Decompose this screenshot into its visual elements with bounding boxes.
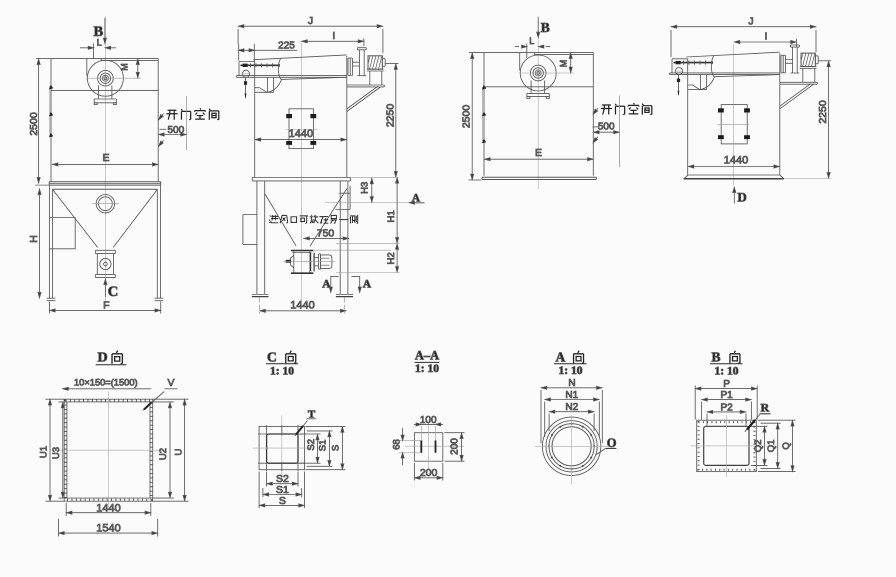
svg-text:N2: N2 xyxy=(565,402,578,413)
svg-text:D: D xyxy=(737,189,746,204)
svg-text:S2: S2 xyxy=(306,439,317,451)
svg-text:100: 100 xyxy=(420,415,437,426)
svg-text:P1: P1 xyxy=(720,390,733,401)
svg-text:A: A xyxy=(322,279,331,291)
svg-text:P: P xyxy=(723,379,730,390)
svg-text:10×150=(1500): 10×150=(1500) xyxy=(74,378,138,388)
svg-text:P2: P2 xyxy=(720,402,733,413)
svg-text:1: 10: 1: 10 xyxy=(270,365,294,377)
svg-text:M: M xyxy=(559,60,569,68)
svg-text:A: A xyxy=(556,349,566,364)
svg-text:H1: H1 xyxy=(386,210,397,222)
svg-text:1440: 1440 xyxy=(289,128,313,140)
svg-text:750: 750 xyxy=(317,227,335,239)
svg-text:A–A: A–A xyxy=(415,349,439,363)
svg-text:H3: H3 xyxy=(359,182,370,194)
svg-text:1440: 1440 xyxy=(724,155,748,167)
svg-text:68: 68 xyxy=(392,439,403,450)
svg-text:I: I xyxy=(332,30,335,42)
svg-text:I: I xyxy=(765,31,768,43)
svg-text:V: V xyxy=(167,377,174,389)
svg-text:500: 500 xyxy=(598,122,615,133)
svg-text:S1: S1 xyxy=(318,440,329,452)
svg-text:H2: H2 xyxy=(386,252,397,264)
svg-text:1440: 1440 xyxy=(290,299,314,311)
svg-text:225: 225 xyxy=(278,41,295,52)
svg-text:1: 10: 1: 10 xyxy=(559,365,583,377)
svg-text:B: B xyxy=(712,349,721,364)
svg-text:L: L xyxy=(97,37,102,47)
svg-text:B: B xyxy=(541,20,550,35)
svg-text:D: D xyxy=(98,351,108,366)
svg-text:2500: 2500 xyxy=(28,112,40,136)
svg-text:U1: U1 xyxy=(39,446,50,458)
svg-text:S: S xyxy=(279,495,286,507)
svg-text:Q2: Q2 xyxy=(753,440,764,453)
svg-text:A: A xyxy=(363,279,372,291)
svg-text:1: 10: 1: 10 xyxy=(415,363,439,375)
svg-text:J: J xyxy=(748,15,753,27)
svg-text:H: H xyxy=(28,235,40,243)
svg-text:U: U xyxy=(173,448,184,455)
svg-text:Q: Q xyxy=(781,442,792,449)
svg-text:A: A xyxy=(412,193,421,205)
svg-text:2500: 2500 xyxy=(461,105,473,129)
svg-text:N: N xyxy=(568,378,575,389)
svg-text:U3: U3 xyxy=(51,447,62,459)
svg-text:S: S xyxy=(331,445,342,451)
svg-text:U2: U2 xyxy=(158,448,169,460)
svg-text:J: J xyxy=(308,15,313,27)
svg-text:Q1: Q1 xyxy=(766,440,777,453)
svg-text:E: E xyxy=(535,147,542,159)
svg-text:1440: 1440 xyxy=(96,502,120,514)
svg-text:500: 500 xyxy=(167,125,184,136)
svg-text:L: L xyxy=(529,36,534,46)
svg-text:2250: 2250 xyxy=(384,104,396,128)
svg-text:C: C xyxy=(267,349,277,364)
svg-text:200: 200 xyxy=(420,467,438,479)
svg-text:C: C xyxy=(108,284,118,300)
svg-text:1: 10: 1: 10 xyxy=(715,365,739,377)
svg-text:M: M xyxy=(119,63,129,71)
svg-text:E: E xyxy=(102,152,109,164)
svg-text:F: F xyxy=(103,300,109,312)
svg-text:2250: 2250 xyxy=(817,100,829,124)
svg-text:1540: 1540 xyxy=(96,523,120,535)
svg-text:200: 200 xyxy=(450,438,461,455)
svg-text:R: R xyxy=(761,401,770,415)
svg-text:N1: N1 xyxy=(565,390,578,401)
